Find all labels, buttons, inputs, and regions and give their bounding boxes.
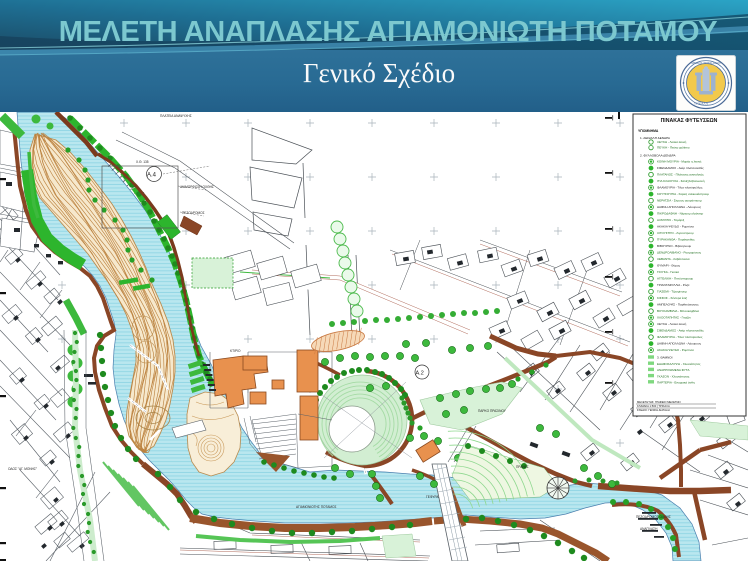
svg-text:Γενικό Σχέδιο: Γενικό Σχέδιο [303, 58, 455, 88]
svg-text:ΛΕΥΚΗ - Λεύκα λευκή: ΛΕΥΚΗ - Λεύκα λευκή [657, 140, 687, 144]
svg-text:ΔΑΦΝΗ ΑΠΟΛΛΩΝΑ - Λάουρους: ΔΑΦΝΗ ΑΠΟΛΛΩΝΑ - Λάουρους [657, 342, 702, 346]
svg-text:ΛΕΒΑΝΤΑ - Λαβάντουλα: ΛΕΒΑΝΤΑ - Λαβάντουλα [657, 257, 690, 261]
svg-text:ΠΥΡΑΚΑΝΘΑ - Πυράκανθος: ΠΥΡΑΚΑΝΘΑ - Πυράκανθος [657, 238, 695, 242]
svg-text:ΟΔΟΣ "ΑΓ. ΜΟΝΗΣ": ΟΔΟΣ "ΑΓ. ΜΟΝΗΣ" [8, 467, 37, 471]
svg-text:ΘΥΜΑΡΙ - Θύμος: ΘΥΜΑΡΙ - Θύμος [657, 264, 681, 268]
svg-text:3. ΘΑΜΝΟΙ: 3. ΘΑΜΝΟΙ [657, 356, 673, 360]
svg-text:ΣΧΕΔΙΟ: ΓΕΝΙΚΗ ΔΙΑΤΑΞΗ: ΣΧΕΔΙΟ: ΓΕΝΙΚΗ ΔΙΑΤΑΞΗ [637, 408, 670, 412]
svg-text:Χ.Θ. 135: Χ.Θ. 135 [136, 160, 149, 164]
svg-text:ΦΛΑΜΟΥΡΙΑ - Τίλια πλατύφυλλος: ΦΛΑΜΟΥΡΙΑ - Τίλια πλατύφυλλος [657, 335, 703, 339]
svg-text:ΓΙΑΣΕΜΙ - Τζασμίνουμ: ΓΙΑΣΕΜΙ - Τζασμίνουμ [657, 290, 687, 294]
svg-text:ΧΛΟΟΤΑΠΗΤΑΣ - Γκαζόν: ΧΛΟΟΤΑΠΗΤΑΣ - Γκαζόν [657, 316, 691, 320]
svg-text:ΠΛΑΤΑΝΟΣ - Πλάτανος ανατολικός: ΠΛΑΤΑΝΟΣ - Πλάτανος ανατολικός [657, 173, 704, 177]
svg-text:ΣΦΕΝΔΑΜΟΣ - Ακέρ πλατανοειδές: ΣΦΕΝΔΑΜΟΣ - Ακέρ πλατανοειδές [657, 166, 704, 170]
svg-text:A.2: A.2 [416, 371, 424, 377]
svg-text:ΓΕΦΥΡΑ: ΓΕΦΥΡΑ [426, 495, 439, 499]
svg-text:ΛΕΥΚΗ - Λεύκα λευκή: ΛΕΥΚΗ - Λεύκα λευκή [657, 322, 687, 326]
svg-text:ΙΤΙΑ ΚΛΑΙΟΥΣΑ - Σαλίξ βαβυλωνι: ΙΤΙΑ ΚΛΑΙΟΥΣΑ - Σαλίξ βαβυλωνική [657, 179, 705, 183]
svg-text:2. ΦΥΛΛΟΒΟΛΑ ΔΕΝΔΡΑ: 2. ΦΥΛΛΟΒΟΛΑ ΔΕΝΔΡΑ [640, 154, 676, 158]
svg-text:ΦΛΑΜΟΥΡΙΑ - Τίλια πλατύφυλλος: ΦΛΑΜΟΥΡΙΑ - Τίλια πλατύφυλλος [657, 186, 703, 190]
svg-text:ΑΚΑΚΙΑ ΨΕΥΔΟ - Ρομπίνια: ΑΚΑΚΙΑ ΨΕΥΔΟ - Ρομπίνια [657, 225, 694, 229]
svg-text:ΠΛΑΤΕΙΑ ΑΝΑΨΥΧΗΣ: ΠΛΑΤΕΙΑ ΑΝΑΨΥΧΗΣ [160, 114, 192, 118]
svg-text:ΑΜΠΕΛΟΨΙΣ - Παρθενόκισσος: ΑΜΠΕΛΟΨΙΣ - Παρθενόκισσος [657, 303, 699, 307]
svg-text:ΑΝΑΡΡΙΧΩΜΕΝΑ ΦΥΤΑ: ΑΝΑΡΡΙΧΩΜΕΝΑ ΦΥΤΑ [657, 368, 690, 372]
svg-text:ΔΑΦΝΗ ΑΠΟΛΛΩΝΑ - Λάουρους: ΔΑΦΝΗ ΑΠΟΛΛΩΝΑ - Λάουρους [657, 205, 702, 209]
svg-text:ΔΗΜΟΣ ΤΡΙΚΚΑΙΩΝ: ΔΗΜΟΣ ΤΡΙΚΚΑΙΩΝ [691, 61, 721, 65]
svg-text:ΝΕΡΑΤΖΙΑ - Σίτρους αουράντιουμ: ΝΕΡΑΤΖΙΑ - Σίτρους αουράντιουμ [657, 199, 702, 203]
svg-text:ΚΟΙΝΗ ΜΟΥΡΙΑ - Μορέα η λευκή: ΚΟΙΝΗ ΜΟΥΡΙΑ - Μορέα η λευκή [657, 160, 702, 164]
svg-text:ΑΚΑΚΙΑ ΨΕΥΔΟ - Ρομπίνια: ΑΚΑΚΙΑ ΨΕΥΔΟ - Ρομπίνια [657, 348, 694, 352]
svg-text:ΛΙΓΟΥΣΤΡΟ - Λιγούστρουμ: ΛΙΓΟΥΣΤΡΟ - Λιγούστρουμ [657, 231, 694, 235]
svg-text:ΓΙΟΥΚΑ - Γιούκα: ΓΙΟΥΚΑ - Γιούκα [657, 270, 679, 274]
svg-text:A.4: A.4 [147, 173, 157, 179]
svg-text:ΜΕΛΕΤΗΤΗΣ: ΓΡΑΦΕΙΟ ΜΕΛΕΤΩΝ: ΜΕΛΕΤΗΤΗΣ: ΓΡΑΦΕΙΟ ΜΕΛΕΤΩΝ [637, 400, 680, 404]
svg-text:ΚΙΣΣΟΣ - Χέντερα έλιξ: ΚΙΣΣΟΣ - Χέντερα έλιξ [657, 296, 688, 300]
svg-text:ΠΑΡΤΕΡΙΑ - Εποχιακά άνθη: ΠΑΡΤΕΡΙΑ - Εποχιακά άνθη [657, 381, 695, 385]
svg-text:ΓΚΑΖΟΝ - Χλοοτάπητας: ΓΚΑΖΟΝ - Χλοοτάπητας [657, 374, 690, 378]
svg-text:ΣΦΕΝΔΑΜΟΣ - Ακέρ πλατανοειδές: ΣΦΕΝΔΑΜΟΣ - Ακέρ πλατανοειδές [657, 329, 704, 333]
svg-text:ΚΛΙΜΑΚΑ 1:500 | ΤΡΙΚΑΛΑ: ΚΛΙΜΑΚΑ 1:500 | ΤΡΙΚΑΛΑ [637, 404, 670, 408]
svg-text:ΤΡΙΚΑΛΑ: ΤΡΙΚΑΛΑ [694, 102, 709, 106]
svg-text:ΑΓΓΕΛΙΚΗ - Πιττόσπορουμ: ΑΓΓΕΛΙΚΗ - Πιττόσπορουμ [657, 277, 693, 281]
svg-text:ΤΡΙΑΝΤΑΦΥΛΛΙΑ - Ρόζα: ΤΡΙΑΝΤΑΦΥΛΛΙΑ - Ρόζα [657, 283, 690, 287]
svg-text:ΚΟΥΤΣΟΥΠΙΑ - Κερκίς σιλικουάστ: ΚΟΥΤΣΟΥΠΙΑ - Κερκίς σιλικουάστρουμ [657, 192, 709, 196]
svg-text:ΠΙΚΡΟΔΑΦΝΗ - Νέριουμ ολεάντερ: ΠΙΚΡΟΔΑΦΝΗ - Νέριουμ ολεάντερ [657, 212, 704, 216]
svg-text:ΠΑΡΚΟ ΠΡΑΣΙΝΟΥ: ΠΑΡΚΟ ΠΡΑΣΙΝΟΥ [478, 409, 507, 413]
svg-text:ΚΤΙΡΙΟ: ΚΤΙΡΙΟ [230, 349, 241, 353]
svg-text:ΔΕΝΔΡΟΛΙΒΑΝΟ - Ροσμαρίνους: ΔΕΝΔΡΟΛΙΒΑΝΟ - Ροσμαρίνους [657, 251, 702, 255]
svg-text:ΠΡΑΝΕΣ: ΠΡΑΝΕΣ [516, 465, 529, 469]
svg-text:ΕΔΑΦΟΚΑΛΥΨΗ - Χλοοτάπητας: ΕΔΑΦΟΚΑΛΥΨΗ - Χλοοτάπητας [657, 362, 701, 366]
svg-text:ΒΙΒΟΥΡΝΟ - Βιβούρνουμ: ΒΙΒΟΥΡΝΟ - Βιβούρνουμ [657, 244, 691, 248]
svg-text:ΑΛΜΥΡΙΚΙ - Ταμάριξ: ΑΛΜΥΡΙΚΙ - Ταμάριξ [657, 218, 685, 222]
svg-text:ΠΕΖΟΔΡΟΜΟΣ: ΠΕΖΟΔΡΟΜΟΣ [182, 211, 205, 215]
svg-text:ΠΙΝΑΚΑΣ ΦΥΤΕΥΣΕΩΝ: ΠΙΝΑΚΑΣ ΦΥΤΕΥΣΕΩΝ [661, 118, 718, 124]
svg-text:ΠΕΥΚΗ - Πεύκο χαλέπιο: ΠΕΥΚΗ - Πεύκο χαλέπιο [657, 146, 690, 150]
svg-text:ΑΓΙΑΜΟΝΙΩΤΗΣ ΠΟΤΑΜΟΣ: ΑΓΙΑΜΟΝΙΩΤΗΣ ΠΟΤΑΜΟΣ [296, 505, 336, 509]
svg-text:ΜΕΛΕΤΗ ΑΝΑΠΛΑΣΗΣ ΑΓΙΑΜΟΝΙΩΤΗ Π: ΜΕΛΕΤΗ ΑΝΑΠΛΑΣΗΣ ΑΓΙΑΜΟΝΙΩΤΗ ΠΟΤΑΜΟΥ [59, 16, 718, 48]
svg-text:ΥΠΟΜΝΗΜΑ: ΥΠΟΜΝΗΜΑ [638, 129, 659, 133]
svg-text:ΒΟΥΚΑΜΒΙΛΙΑ - Μπουκαμβίλια: ΒΟΥΚΑΜΒΙΛΙΑ - Μπουκαμβίλια [657, 309, 699, 313]
